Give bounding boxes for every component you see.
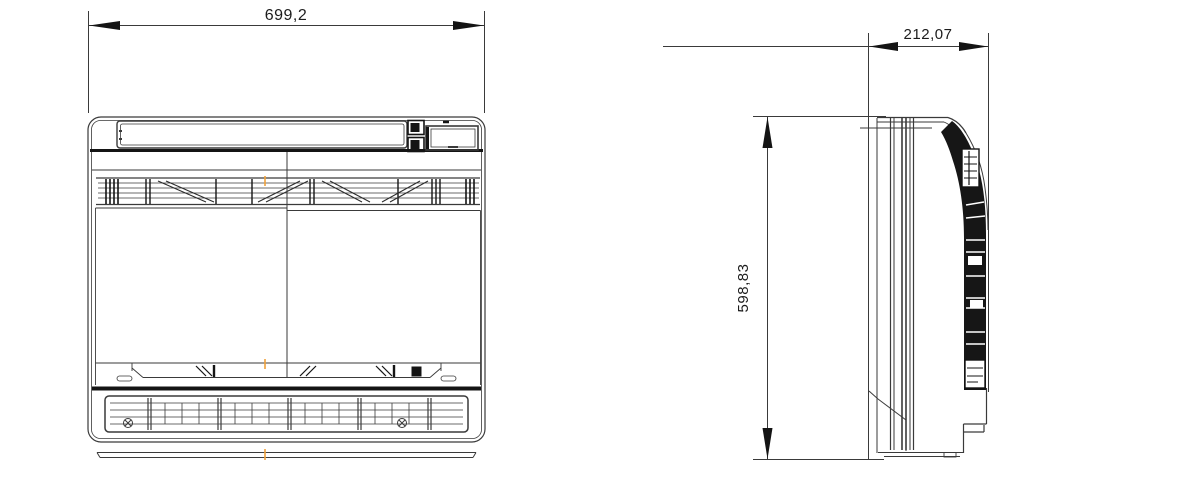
height-dim-label: 598,83: [735, 264, 752, 313]
grille-blade-diagonals: [158, 181, 428, 202]
arrow-up-icon: [763, 117, 773, 148]
arrow-right-icon: [453, 21, 484, 30]
base-plate: [97, 453, 476, 458]
outlet-grille: [96, 178, 480, 205]
front-louver-band: [941, 121, 986, 390]
side-front-step: [964, 388, 987, 453]
width-dimension: 699,2: [89, 7, 485, 113]
trim-hatch-marks: [196, 365, 421, 377]
drawing-canvas: 699,2 212,07 598,83: [0, 0, 1200, 481]
control-button-glyph: [411, 141, 419, 149]
display-panel-window: [431, 129, 475, 147]
arrow-right-icon: [959, 42, 988, 51]
intake-grille: [105, 396, 468, 432]
arrow-down-icon: [763, 428, 773, 459]
screw-icon: [398, 419, 407, 428]
front-view: [88, 117, 485, 460]
width-dim-label: 699,2: [265, 7, 308, 24]
depth-dim-label: 212,07: [904, 26, 953, 43]
side-back-bottom: [869, 391, 906, 451]
top-flap-inner: [121, 124, 405, 145]
display-panel: [426, 122, 478, 150]
screw-icon: [124, 419, 133, 428]
intake-grille-slats: [165, 403, 409, 424]
side-top-vent-box: [962, 149, 979, 187]
depth-dimension: 212,07: [663, 26, 989, 460]
arrow-left-icon: [869, 42, 898, 51]
side-view: [860, 117, 988, 457]
side-bottom-panel-box: [965, 360, 985, 388]
intake-grille-frame: [105, 396, 468, 432]
arrow-left-icon: [89, 21, 120, 30]
height-dimension: 598,83: [735, 117, 886, 460]
side-bottom: [878, 453, 964, 458]
dimension-drawing: 699,2 212,07 598,83: [0, 0, 1200, 481]
control-button-glyph: [411, 124, 419, 132]
top-flap: [117, 121, 407, 148]
front-panels: [96, 208, 481, 385]
control-button-icons: [408, 121, 424, 152]
